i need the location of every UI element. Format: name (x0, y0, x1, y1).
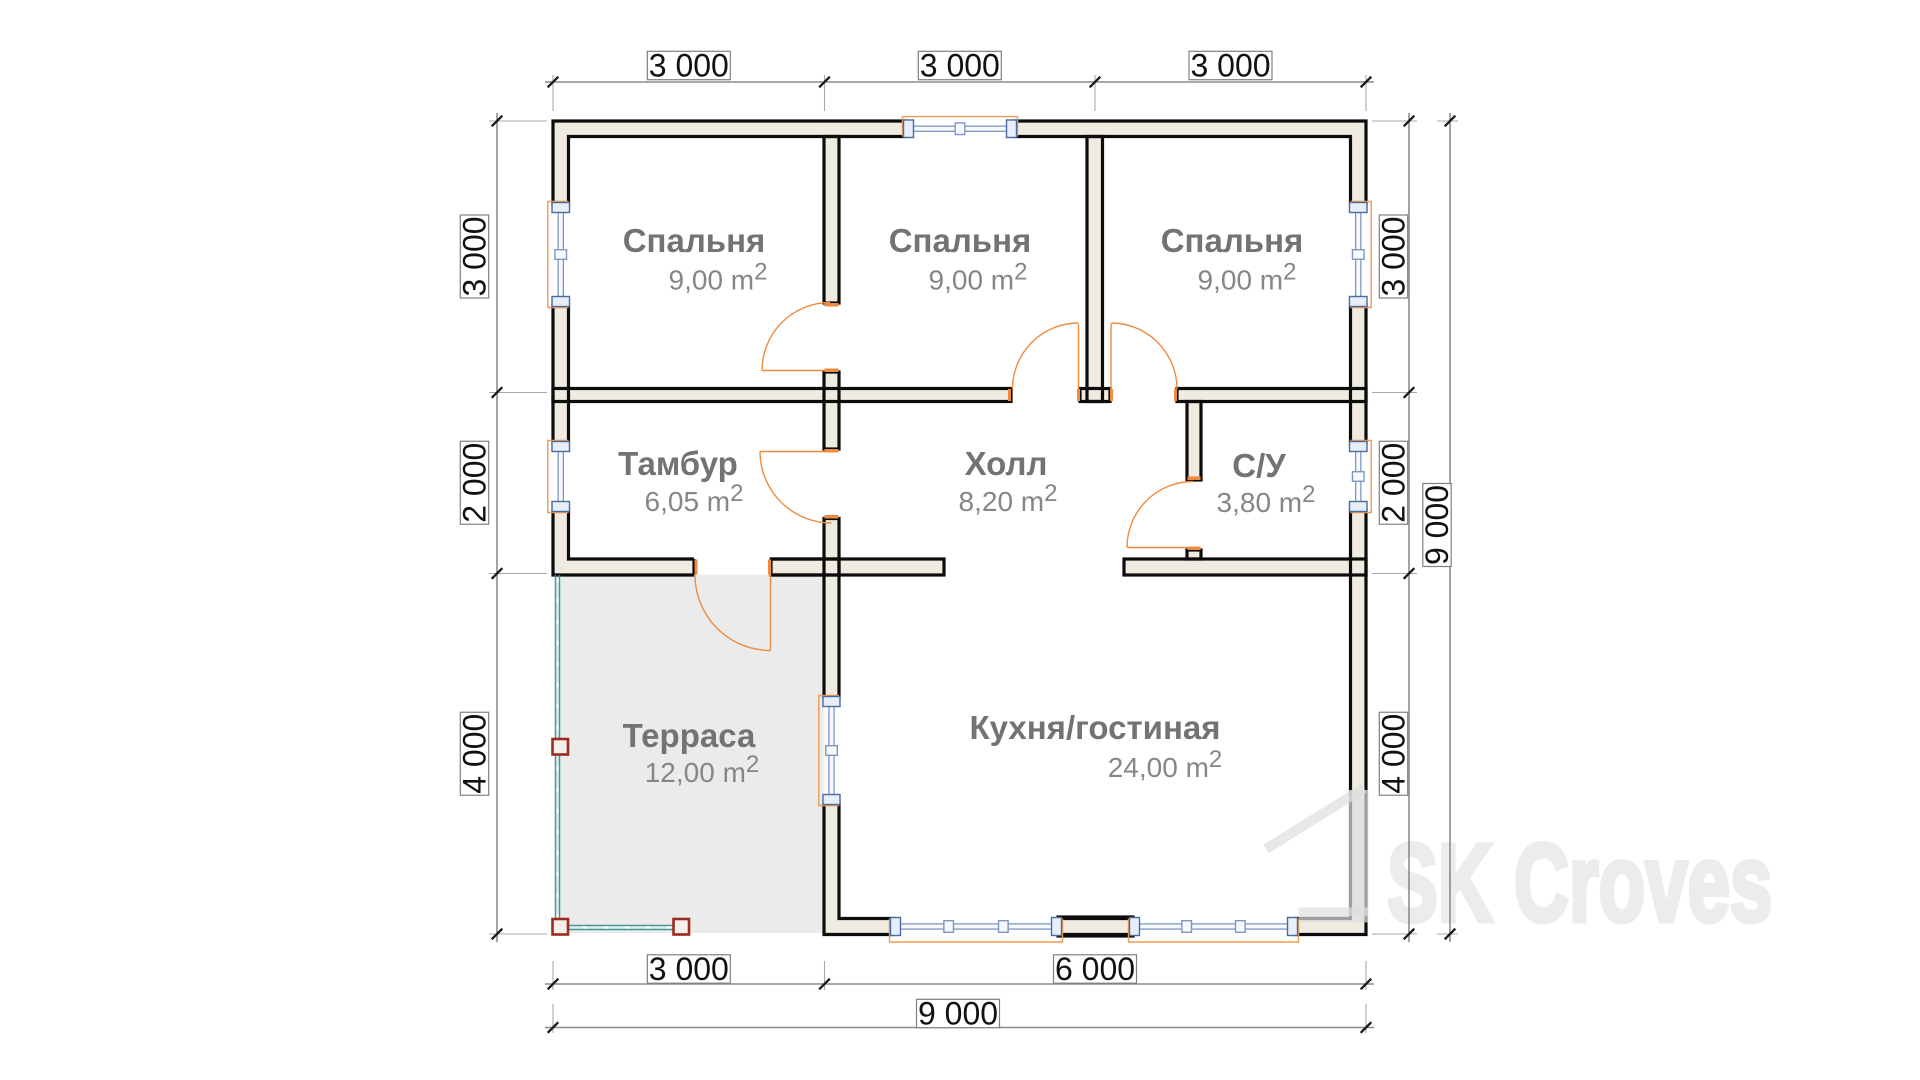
svg-text:Спальня: Спальня (889, 222, 1032, 259)
svg-text:3 000: 3 000 (1376, 216, 1412, 296)
svg-text:Терраса: Терраса (623, 717, 756, 754)
svg-text:9 000: 9 000 (918, 996, 998, 1032)
svg-text:9,00 m2: 9,00 m2 (1198, 259, 1297, 296)
svg-text:3 000: 3 000 (457, 216, 493, 296)
svg-text:9,00 m2: 9,00 m2 (669, 259, 768, 296)
svg-text:3 000: 3 000 (1190, 48, 1270, 84)
svg-text:24,00 m2: 24,00 m2 (1108, 746, 1223, 783)
svg-text:4 000: 4 000 (457, 714, 493, 794)
svg-text:12,00 m2: 12,00 m2 (645, 751, 760, 788)
svg-text:6 000: 6 000 (1055, 951, 1135, 987)
svg-text:Кухня/гостиная: Кухня/гостиная (970, 709, 1221, 746)
svg-text:С/У: С/У (1232, 447, 1286, 484)
svg-text:9 000: 9 000 (1419, 485, 1455, 565)
svg-text:3 000: 3 000 (649, 951, 729, 987)
svg-text:2 000: 2 000 (1376, 443, 1412, 523)
svg-text:Холл: Холл (965, 445, 1048, 482)
svg-text:4 000: 4 000 (1376, 714, 1412, 794)
svg-text:9,00 m2: 9,00 m2 (929, 259, 1028, 296)
svg-text:2 000: 2 000 (457, 443, 493, 523)
svg-text:8,20 m2: 8,20 m2 (959, 480, 1058, 517)
svg-text:6,05 m2: 6,05 m2 (645, 480, 744, 517)
svg-text:Тамбур: Тамбур (618, 445, 738, 482)
svg-text:SK Croves: SK Croves (1387, 822, 1772, 945)
svg-text:Спальня: Спальня (623, 222, 766, 259)
svg-text:3,80 m2: 3,80 m2 (1217, 481, 1316, 518)
svg-text:3 000: 3 000 (649, 48, 729, 84)
svg-text:3 000: 3 000 (920, 48, 1000, 84)
svg-text:Спальня: Спальня (1161, 222, 1304, 259)
